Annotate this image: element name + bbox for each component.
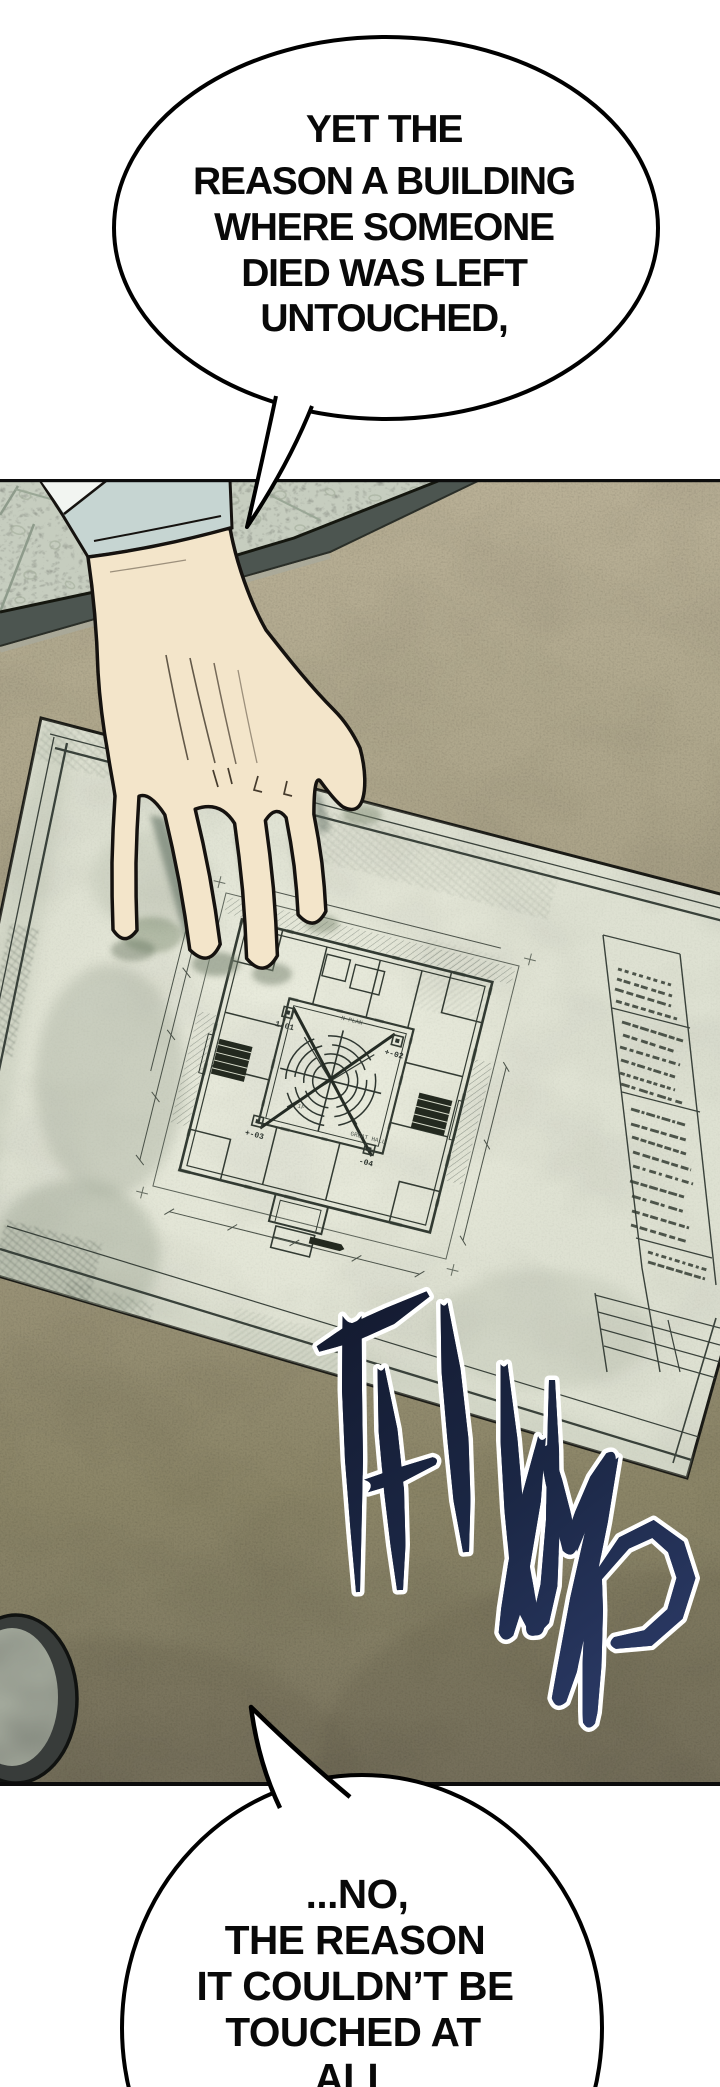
svg-text:YET THE: YET THE	[306, 108, 462, 151]
svg-text:REASON A BUILDING: REASON A BUILDING	[193, 160, 575, 203]
svg-text:IT COULDN’T BE: IT COULDN’T BE	[197, 1963, 514, 2009]
svg-text:DIED WAS LEFT: DIED WAS LEFT	[241, 252, 528, 295]
svg-text:TOUCHED AT: TOUCHED AT	[225, 2009, 481, 2055]
svg-text:...NO,: ...NO,	[306, 1871, 409, 1917]
svg-text:WHERE SOMEONE: WHERE SOMEONE	[214, 206, 554, 249]
svg-text:UNTOUCHED,: UNTOUCHED,	[260, 297, 507, 340]
svg-text:THE REASON: THE REASON	[225, 1917, 486, 1963]
svg-text:ALL: ALL	[314, 2055, 391, 2087]
